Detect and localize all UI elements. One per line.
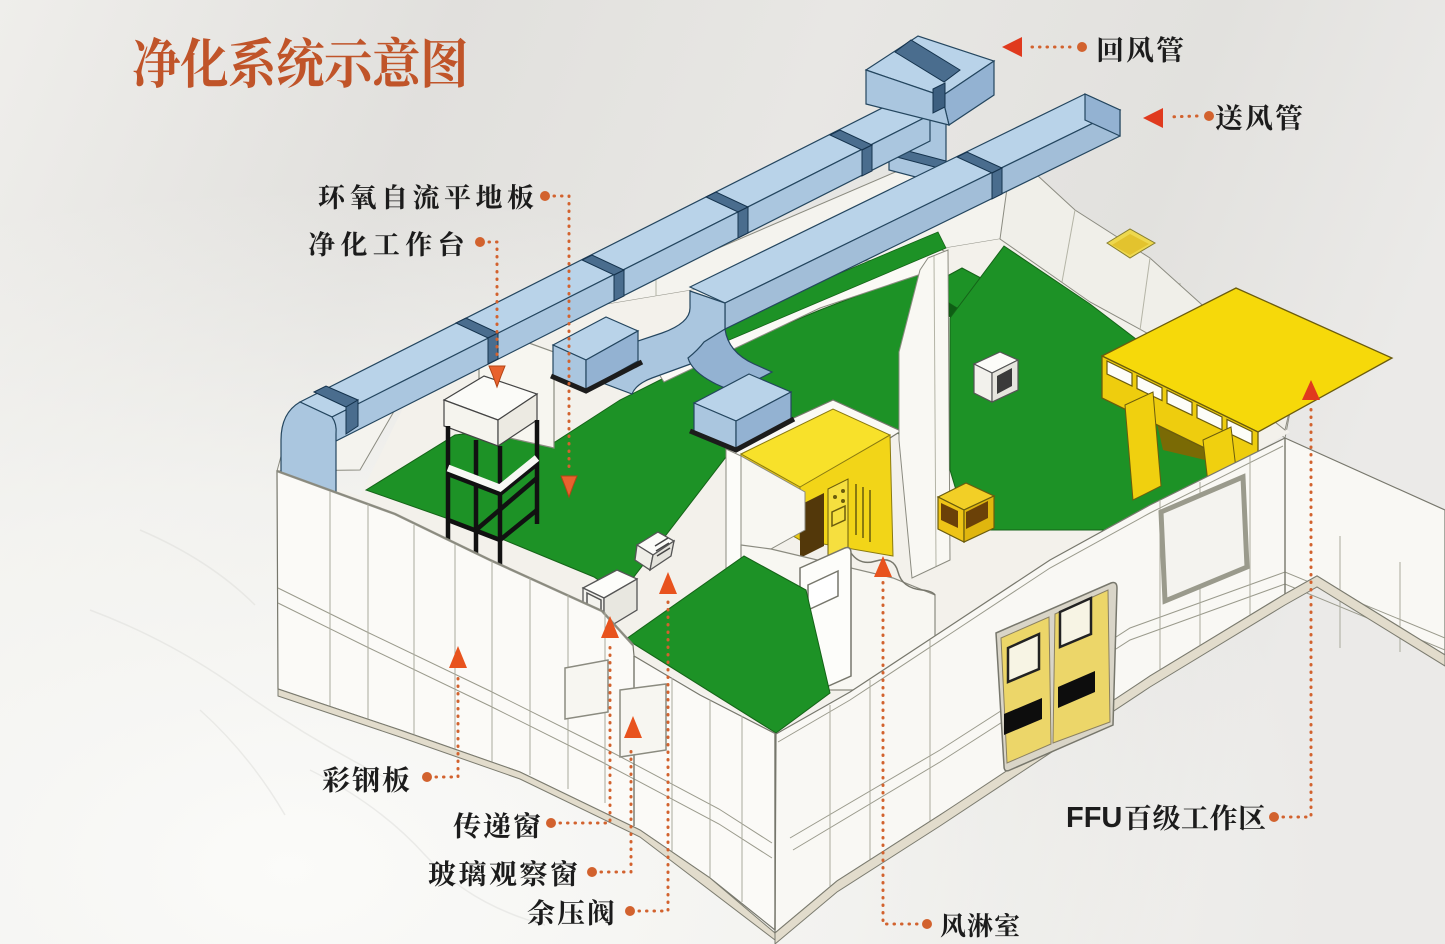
svg-text:FFU: FFU — [1066, 802, 1122, 834]
